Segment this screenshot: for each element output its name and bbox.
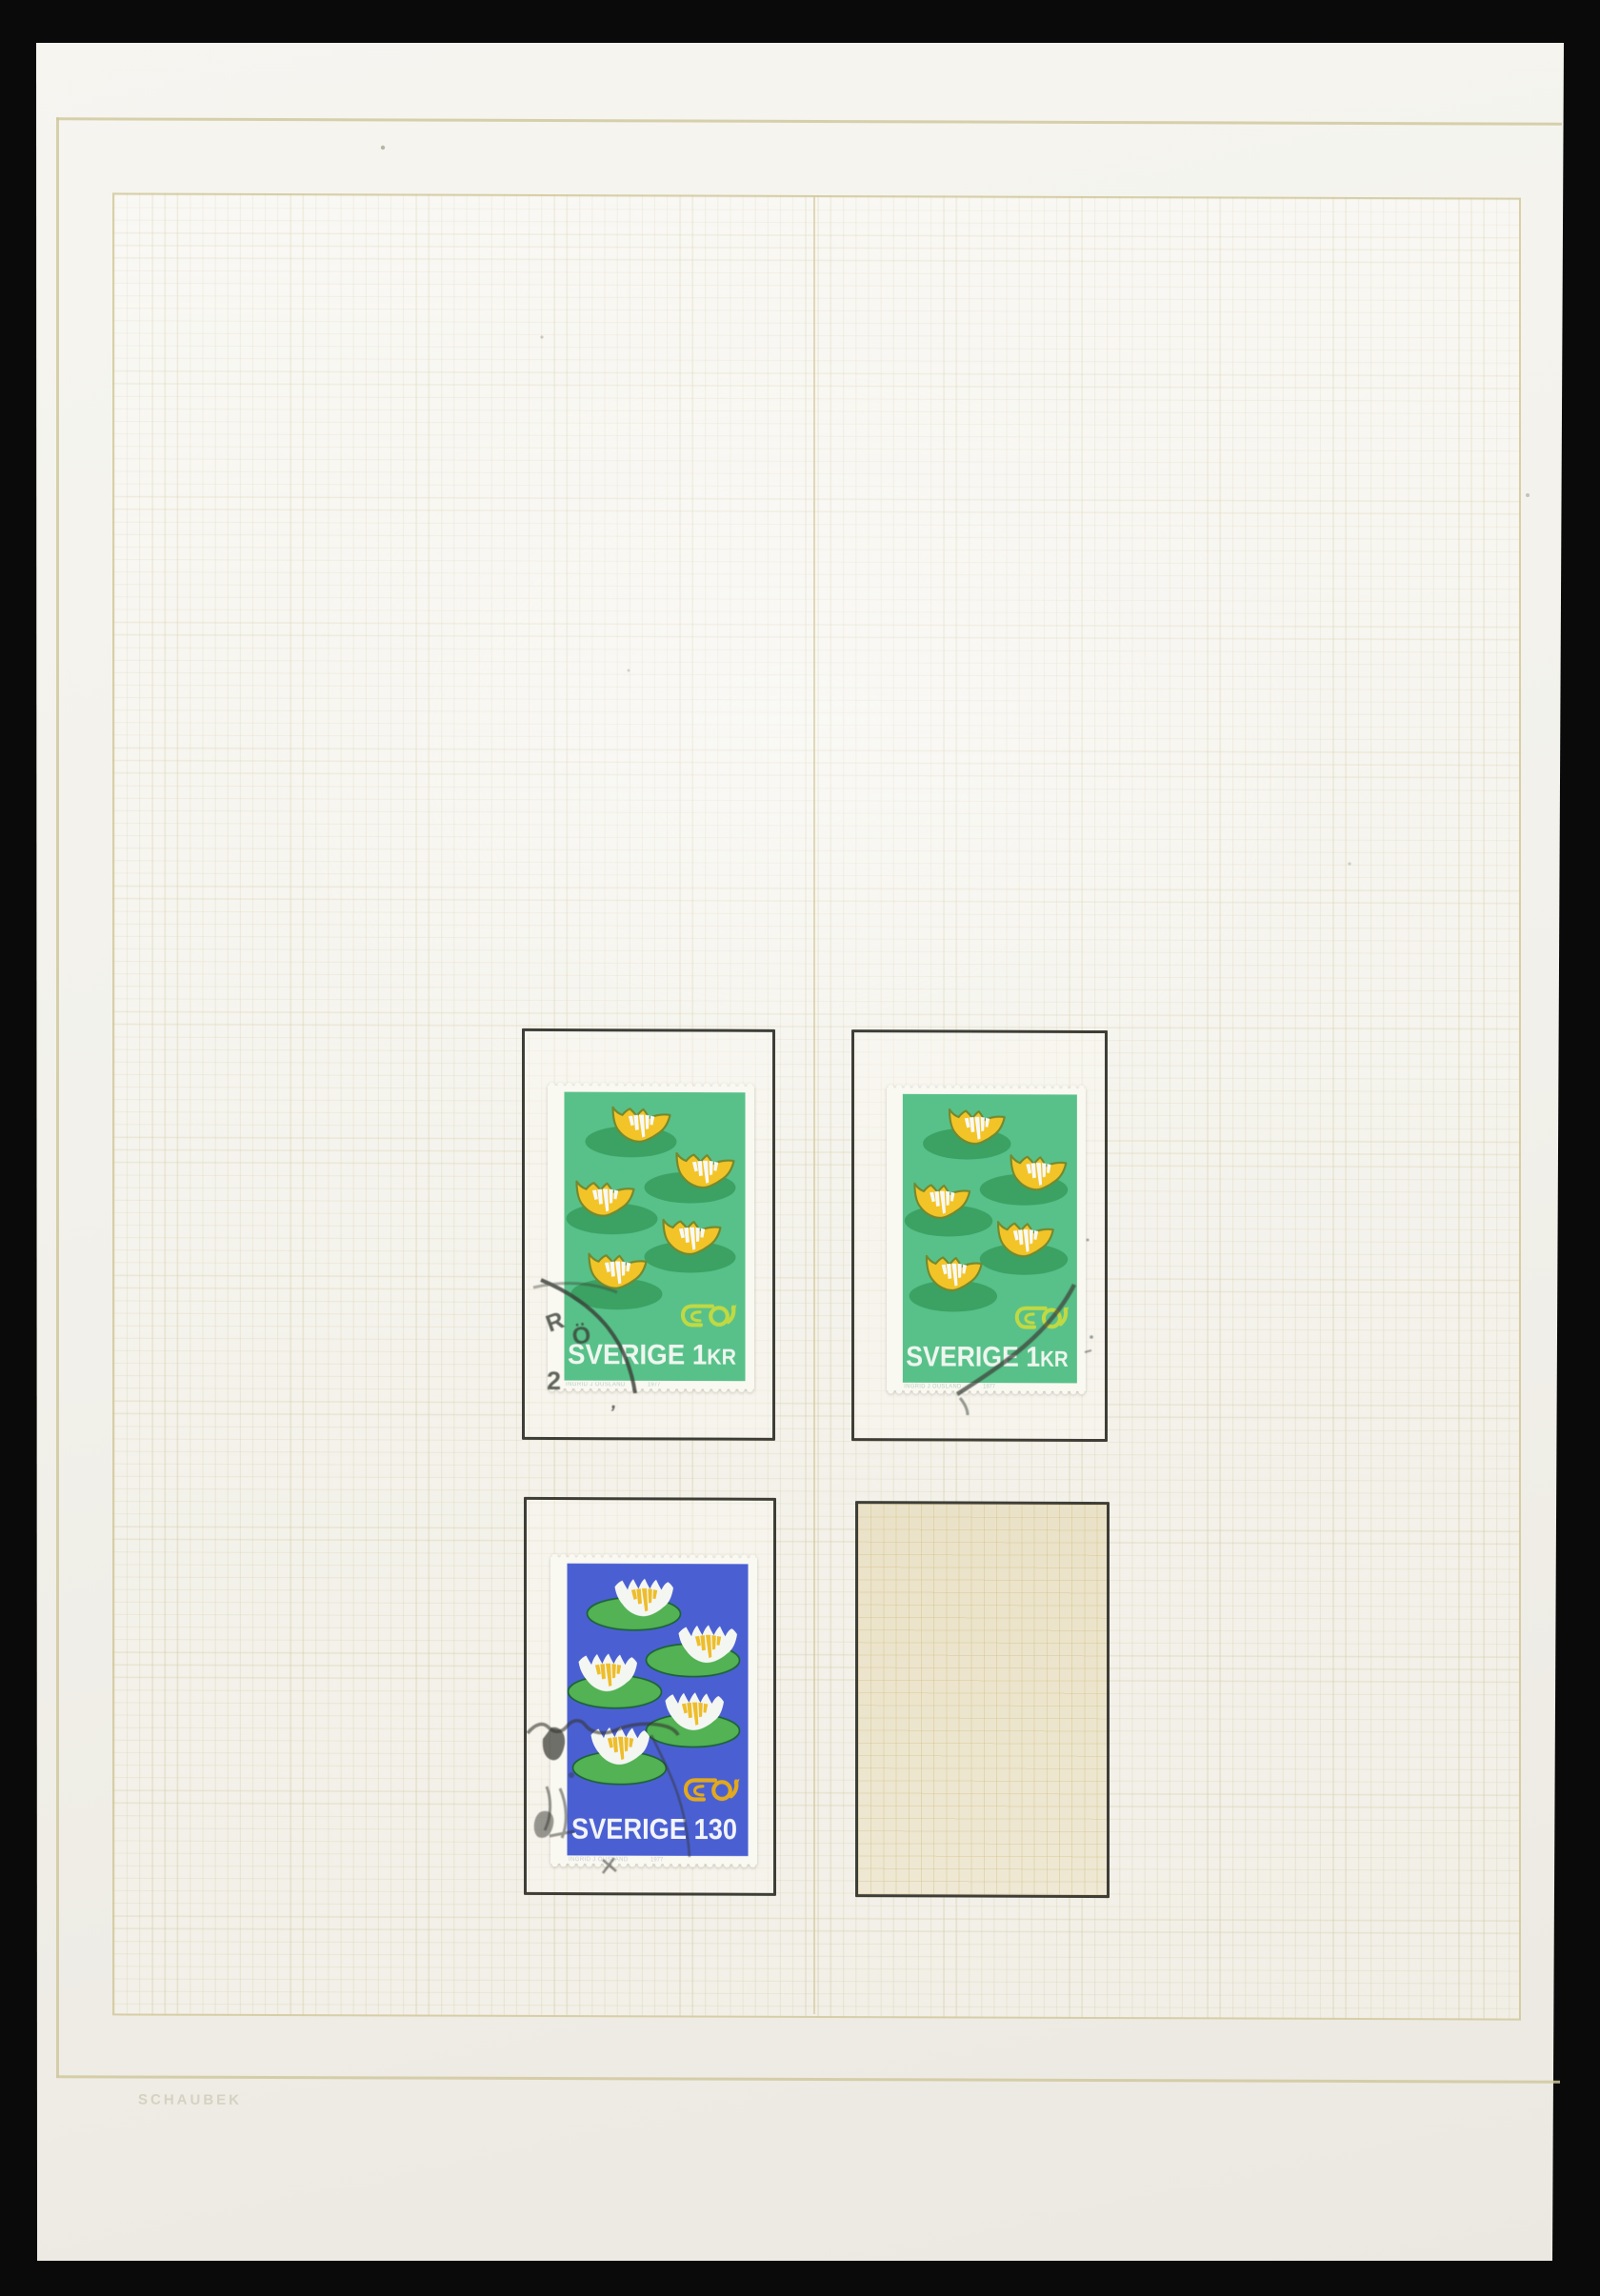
svg-text:2: 2 bbox=[547, 1367, 561, 1395]
svg-text:,: , bbox=[610, 1392, 620, 1414]
svg-text:Ö: Ö bbox=[570, 1321, 592, 1350]
svg-text:R: R bbox=[542, 1307, 568, 1337]
